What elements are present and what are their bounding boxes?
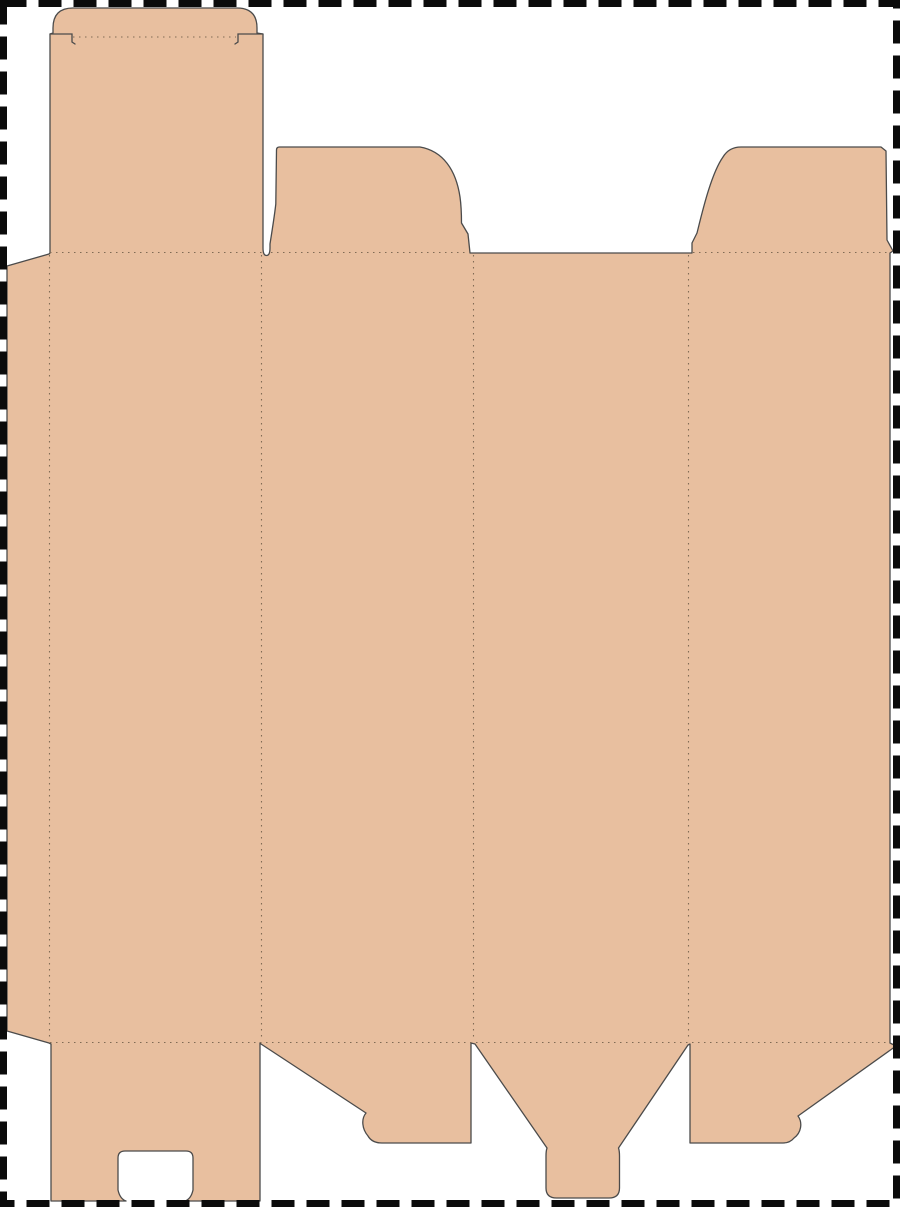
dieline-template-sheet xyxy=(0,0,900,1207)
dieline-canvas xyxy=(0,0,900,1207)
box-blank-outline xyxy=(7,8,896,1201)
